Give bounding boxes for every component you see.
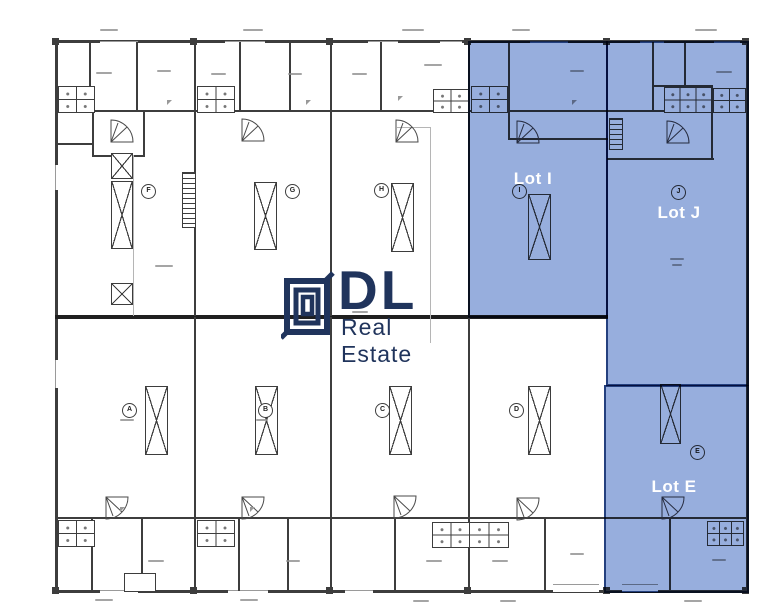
stairs-icon [182, 172, 196, 228]
spiral-stair-icon [516, 497, 544, 524]
window [345, 590, 373, 594]
window [100, 41, 138, 45]
illegible-label [352, 311, 368, 313]
window [55, 360, 59, 388]
illegible-label [424, 64, 442, 66]
illegible-label [100, 29, 118, 31]
illegible-label [426, 560, 442, 562]
logo-initials: DL [338, 263, 417, 318]
door-icon [167, 100, 177, 105]
illegible-label [352, 73, 367, 75]
wall [544, 518, 546, 591]
restroom-cluster [469, 522, 509, 548]
pilaster [52, 38, 59, 45]
illegible-label [286, 560, 300, 562]
wall [239, 42, 241, 111]
wall [136, 42, 138, 111]
illegible-label [120, 419, 134, 421]
entrance-recess [553, 584, 599, 592]
column-icon [145, 386, 168, 455]
dl-logo-icon [281, 266, 335, 340]
column-icon [111, 181, 133, 249]
illegible-label [95, 599, 113, 601]
column-icon [528, 386, 551, 455]
illegible-label [684, 600, 702, 602]
window [228, 590, 268, 594]
wall [92, 111, 94, 157]
window [440, 41, 462, 45]
restroom-cluster [432, 522, 470, 548]
door-icon [398, 96, 408, 101]
unit-marker: D [509, 403, 524, 418]
wall [394, 518, 396, 591]
spiral-stair-icon [393, 495, 421, 522]
unit-marker: A [122, 403, 137, 418]
window [225, 41, 265, 45]
illegible-label [402, 29, 424, 31]
illegible-label [155, 265, 173, 267]
column-icon [389, 386, 412, 455]
closet [124, 573, 156, 592]
unit-marker: C [375, 403, 390, 418]
wall [468, 317, 470, 591]
illegible-label [211, 73, 226, 75]
wall [380, 42, 382, 111]
guide-line [133, 155, 134, 316]
door-icon [306, 100, 316, 105]
floor-plan: F G H I J A B C D E Lot I Lot J Lot E [0, 0, 770, 612]
illegible-label [148, 560, 164, 562]
illegible-label [413, 600, 429, 602]
wall [238, 518, 240, 591]
guide-line [430, 127, 431, 343]
spiral-stair-icon [110, 116, 138, 143]
restroom-cluster [58, 86, 95, 113]
illegible-label [288, 73, 302, 75]
illegible-label [243, 29, 263, 31]
wall [287, 518, 289, 591]
column-icon [111, 153, 133, 179]
wall [57, 143, 93, 145]
restroom-cluster [433, 89, 469, 113]
restroom-cluster [197, 86, 235, 113]
unit-marker: G [285, 184, 300, 199]
door-icon [250, 507, 260, 512]
logo-name: Real Estate [341, 314, 412, 368]
pilaster [52, 587, 59, 594]
restroom-cluster [58, 520, 95, 547]
door-icon [120, 507, 130, 512]
illegible-label [500, 600, 516, 602]
illegible-label [240, 599, 258, 601]
illegible-label [157, 70, 171, 72]
illegible-label [512, 29, 530, 31]
lot-j-label: Lot J [648, 203, 710, 223]
column-icon [254, 182, 277, 250]
illegible-label [570, 553, 584, 555]
wall [141, 518, 143, 576]
illegible-label [695, 29, 717, 31]
unit-marker: F [141, 184, 156, 199]
window [55, 165, 59, 190]
unit-marker: B [258, 403, 273, 418]
column-icon [391, 183, 414, 252]
lot-i-label: Lot I [503, 169, 563, 189]
restroom-cluster [197, 520, 235, 547]
wall [143, 111, 145, 157]
spiral-stair-icon [241, 115, 269, 142]
wall [289, 42, 291, 111]
wall [330, 317, 332, 591]
illegible-label [492, 560, 508, 562]
spiral-stair-icon [395, 116, 423, 143]
lot-e-label: Lot E [643, 477, 705, 497]
window [368, 41, 398, 45]
illegible-label [96, 72, 112, 74]
column-icon [111, 283, 133, 305]
wall [194, 317, 196, 591]
unit-marker: H [374, 183, 389, 198]
illegible-label [256, 419, 268, 421]
